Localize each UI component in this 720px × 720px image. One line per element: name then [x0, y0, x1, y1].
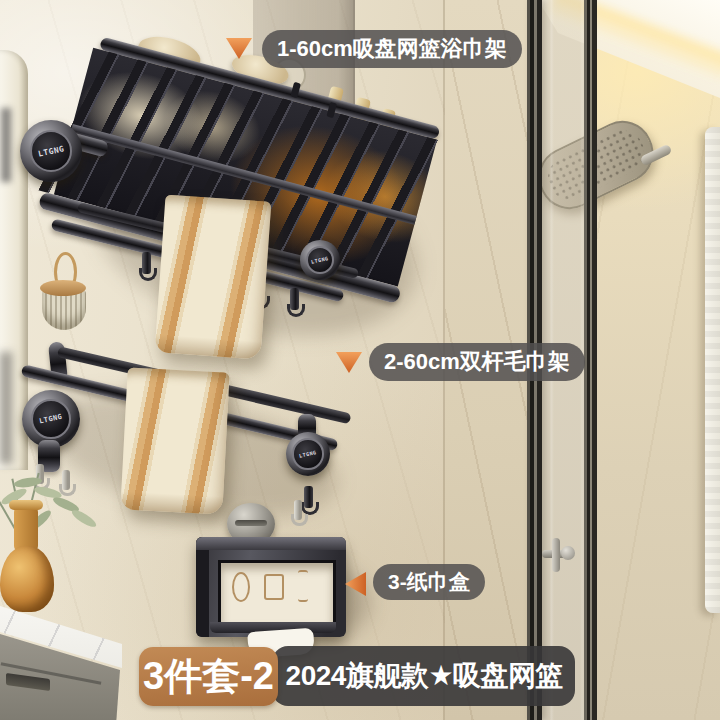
chrome-hook — [62, 470, 70, 490]
suction-mount-large: LTGNG — [20, 120, 82, 182]
robe-hook — [290, 288, 299, 310]
suction-mount-face: LTGNG — [292, 438, 323, 469]
callout-label-3: 3-纸巾盒 — [373, 564, 485, 600]
brand-logo: LTGNG — [311, 255, 329, 265]
brand-logo: LTGNG — [39, 413, 64, 426]
banner-title-pill: 2024旗舰款★吸盘网篮 — [272, 646, 575, 706]
tissue-pack-print — [298, 570, 308, 602]
callout-label-1: 1-60cm吸盘网篮浴巾架 — [262, 30, 522, 68]
striped-towel-top — [155, 194, 272, 359]
robe-hook — [142, 252, 151, 274]
shower-interior-wall — [597, 0, 720, 720]
door-handle-knob — [561, 546, 575, 560]
tissue-pack-print — [264, 574, 284, 600]
callout-label-2: 2-60cm双杆毛巾架 — [369, 343, 585, 381]
suction-mount-face: LTGNG — [306, 246, 335, 275]
glass-vase-rim — [9, 500, 43, 510]
suction-mount-right: LTGNG — [286, 432, 330, 476]
glass-door-frame-inner — [584, 0, 597, 720]
brand-logo: LTGNG — [299, 449, 317, 459]
suction-mount-small: LTGNG — [300, 240, 340, 280]
white-towel-right — [705, 127, 720, 613]
suction-mount-face: LTGNG — [30, 130, 72, 172]
brand-logo: LTGNG — [37, 144, 65, 158]
glass-vase — [0, 546, 54, 612]
brush-wood-cap — [40, 280, 86, 296]
wall-hook — [294, 500, 302, 520]
banner-set-badge: 3件套-2 — [139, 647, 278, 706]
mirror-reflection — [1, 108, 11, 182]
robe-hook — [304, 486, 313, 508]
suction-mount-face: LTGNG — [31, 399, 71, 439]
tissue-pack-print — [232, 572, 250, 602]
door-handle-stem — [552, 538, 560, 572]
mirror-reflection — [0, 352, 12, 464]
product-photo-bathroom-rack-set: LTGNG LTGNG LTGNG — [0, 0, 720, 720]
striped-towel-middle — [120, 367, 229, 514]
